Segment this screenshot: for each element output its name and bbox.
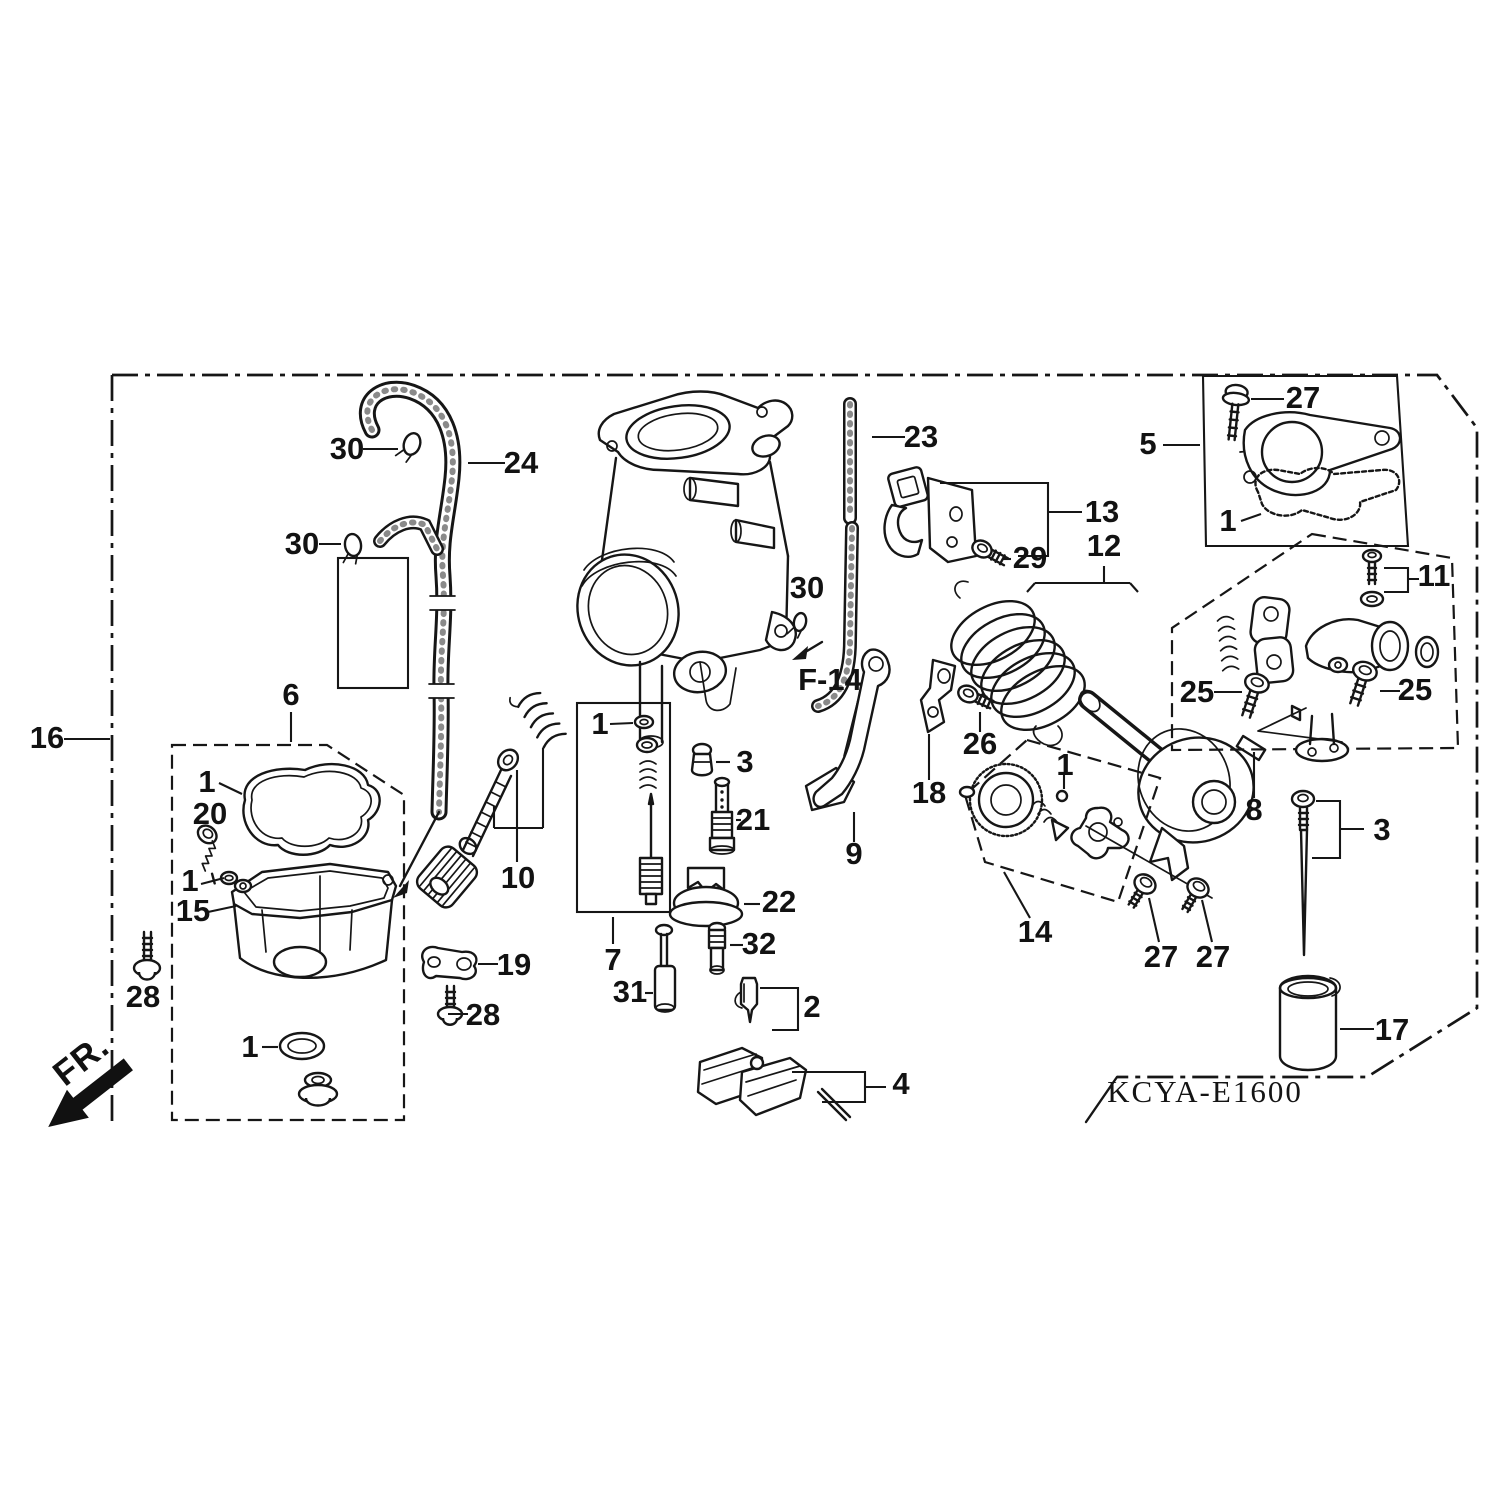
clip-box <box>338 558 408 688</box>
front-direction-indicator: FR. <box>17 1024 138 1140</box>
callout-18: 18 <box>912 775 946 810</box>
chamber-gasket <box>243 764 379 855</box>
callout-28-left: 28 <box>126 979 160 1014</box>
diffuser-22 <box>670 868 760 926</box>
callout-22: 22 <box>762 884 796 919</box>
float-set-4 <box>698 1048 886 1120</box>
parts-diagram-page: FR. KCYA-E1600 <box>0 0 1500 1500</box>
hose-clip-icon <box>340 533 364 565</box>
callout-10: 10 <box>501 860 535 895</box>
callout-30b: 30 <box>285 526 319 561</box>
callout-12: 12 <box>1087 528 1121 563</box>
callout-28-right: 28 <box>466 997 500 1032</box>
callout-11: 11 <box>1418 558 1451 593</box>
link-screw-25-left-icon <box>1235 671 1271 720</box>
link-spring-icon <box>1217 616 1239 671</box>
callout-7: 7 <box>604 942 621 977</box>
plunger-31 <box>645 925 675 1012</box>
callout-27-pump-left: 27 <box>1144 939 1178 974</box>
float-valve-2 <box>735 978 798 1030</box>
carburetor-exploded-diagram: FR. KCYA-E1600 <box>0 0 1500 1500</box>
callout-26: 26 <box>963 726 997 761</box>
callout-14: 14 <box>1018 914 1053 949</box>
air-screw-spring-icon <box>508 683 566 750</box>
callout-30a: 30 <box>330 431 364 466</box>
drain-screw-28-left <box>134 932 160 980</box>
hose-cut-band <box>429 596 456 610</box>
link-plates <box>1249 596 1294 684</box>
callout-30c: 30 <box>790 570 824 605</box>
slow-jet-32 <box>709 923 743 974</box>
pump-cone <box>1052 820 1068 840</box>
callout-31: 31 <box>613 974 647 1009</box>
callout-20: 20 <box>193 796 227 831</box>
joint-bracket-18 <box>921 660 955 780</box>
clamp-bracket-19 <box>422 947 498 979</box>
callout-29: 29 <box>1013 540 1047 575</box>
callout-5: 5 <box>1139 426 1156 461</box>
float-pin <box>818 1089 850 1120</box>
pump-rocker <box>1071 808 1128 859</box>
callout-3-center: 3 <box>736 744 753 779</box>
callout-25-left: 25 <box>1180 674 1214 709</box>
callout-24: 24 <box>504 445 539 480</box>
bracket-screw-28-right <box>438 986 468 1025</box>
cable-bracket-13 <box>885 466 1082 569</box>
callout-16: 16 <box>30 720 64 755</box>
callout-13: 13 <box>1085 494 1119 529</box>
callout-3-right: 3 <box>1373 812 1390 847</box>
callout-8: 8 <box>1245 792 1262 827</box>
callout-32: 32 <box>742 926 776 961</box>
needle-spring-icon <box>640 761 656 788</box>
callout-2: 2 <box>803 989 820 1024</box>
callout-1-cover: 1 <box>1219 503 1236 538</box>
link-pedestal <box>1258 706 1348 761</box>
needle-set-right <box>1292 791 1364 955</box>
callout-1-pump: 1 <box>1056 747 1073 782</box>
drain-o-ring <box>280 1033 324 1059</box>
callout-9: 9 <box>845 836 862 871</box>
pump-diaphragm <box>960 764 1042 836</box>
callout-15: 15 <box>176 893 210 928</box>
carburetor-body <box>563 392 796 749</box>
callout-6: 6 <box>282 677 299 712</box>
callout-21: 21 <box>736 802 770 837</box>
f14-arrow-icon <box>792 646 808 660</box>
float-bowl <box>232 864 396 978</box>
needle-cup-17 <box>1280 976 1374 1070</box>
callout-27-pump-right: 27 <box>1196 939 1230 974</box>
figure-reference: F-14 <box>798 662 863 697</box>
pump-ball <box>1057 791 1067 801</box>
hose-clip-icon <box>395 430 423 465</box>
link-screw-11-icon <box>1361 550 1419 606</box>
callout-19: 19 <box>497 947 531 982</box>
callout-17: 17 <box>1375 1012 1409 1047</box>
callout-23: 23 <box>904 419 938 454</box>
drain-plug <box>299 1073 337 1106</box>
bracket-screw-29-icon <box>969 537 1009 568</box>
callout-4: 4 <box>892 1066 910 1101</box>
callout-25-right: 25 <box>1398 672 1432 707</box>
callout-1-oring: 1 <box>241 1029 258 1064</box>
callout-27-cover: 27 <box>1286 380 1320 415</box>
callout-1-gasket: 1 <box>198 764 215 799</box>
callout-1-box7: 1 <box>591 706 608 741</box>
diagram-code: KCYA-E1600 <box>1107 1074 1303 1109</box>
cap-3 <box>692 744 730 775</box>
